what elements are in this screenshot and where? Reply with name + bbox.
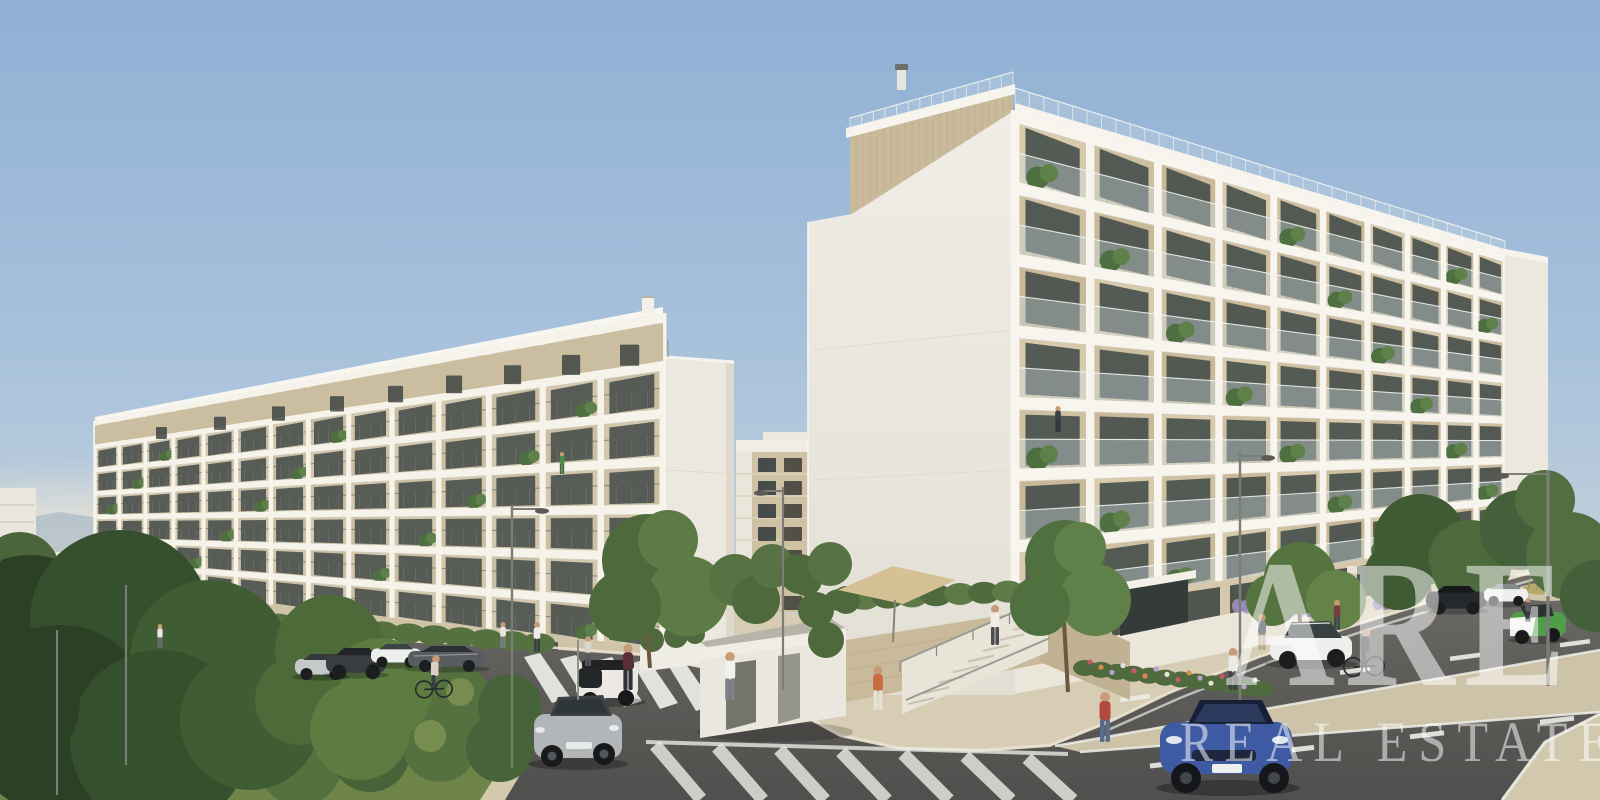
scene-svg	[0, 0, 1600, 800]
architectural-rendering: ARE REAL ESTATE	[0, 0, 1600, 800]
